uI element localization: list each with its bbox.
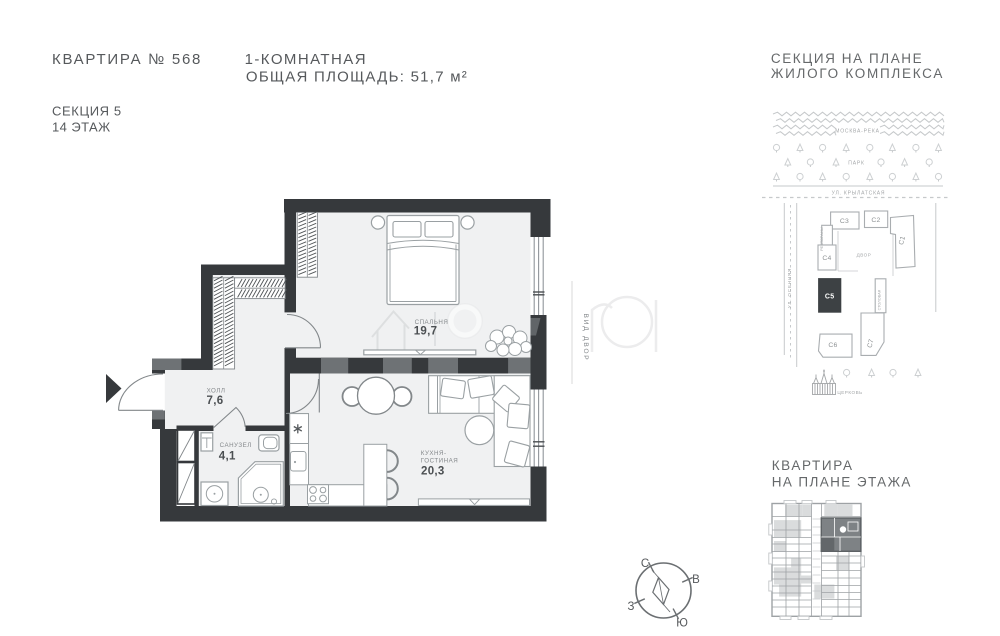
svg-text:С: С bbox=[641, 558, 649, 570]
svg-text:В: В bbox=[692, 574, 700, 586]
svg-text:С6: С6 bbox=[828, 342, 837, 349]
svg-text:УЛ. ОСЕННЯЯ: УЛ. ОСЕННЯЯ bbox=[787, 268, 792, 308]
svg-text:1-КОМНАТНАЯ: 1-КОМНАТНАЯ bbox=[245, 51, 367, 68]
svg-text:ДВОР: ДВОР bbox=[857, 253, 872, 258]
svg-text:Ю: Ю bbox=[676, 618, 688, 630]
svg-text:ВИД ДВОР: ВИД ДВОР bbox=[582, 314, 589, 362]
svg-text:УЛ. КРЫЛАТСКАЯ: УЛ. КРЫЛАТСКАЯ bbox=[832, 191, 886, 197]
svg-text:19,7: 19,7 bbox=[414, 326, 438, 338]
svg-text:С5: С5 bbox=[825, 294, 835, 301]
svg-text:ГОСТИНАЯ: ГОСТИНАЯ bbox=[421, 457, 458, 464]
svg-text:КУХНЯ-: КУХНЯ- bbox=[421, 450, 447, 457]
svg-text:ЖИЛОГО КОМПЛЕКСА: ЖИЛОГО КОМПЛЕКСА bbox=[771, 66, 944, 81]
svg-text:14 ЭТАЖ: 14 ЭТАЖ bbox=[52, 120, 111, 135]
svg-text:ПАРК: ПАРК bbox=[848, 161, 864, 167]
svg-text:ОБЩАЯ ПЛОЩАДЬ: 51,7 м²: ОБЩАЯ ПЛОЩАДЬ: 51,7 м² bbox=[246, 69, 468, 86]
svg-text:НА ПЛАНЕ ЭТАЖА: НА ПЛАНЕ ЭТАЖА bbox=[772, 475, 912, 490]
svg-text:КВАРТИРА № 568: КВАРТИРА № 568 bbox=[52, 51, 202, 68]
svg-text:7,6: 7,6 bbox=[207, 395, 224, 407]
svg-text:З: З bbox=[628, 601, 635, 613]
svg-text:С3: С3 bbox=[840, 218, 849, 225]
svg-text:С4: С4 bbox=[822, 255, 831, 262]
svg-text:СЕКЦИЯ 5: СЕКЦИЯ 5 bbox=[52, 104, 122, 119]
svg-text:С2: С2 bbox=[871, 217, 880, 224]
svg-text:РЕСТОРАНЫ: РЕСТОРАНЫ bbox=[820, 227, 824, 251]
svg-text:20,3: 20,3 bbox=[421, 466, 445, 478]
svg-text:ЦЕРКОВЬ: ЦЕРКОВЬ bbox=[837, 390, 862, 395]
svg-text:СЕКЦИЯ НА ПЛАНЕ: СЕКЦИЯ НА ПЛАНЕ bbox=[771, 51, 923, 66]
svg-text:МОСКВА-РЕКА: МОСКВА-РЕКА bbox=[835, 129, 879, 135]
svg-text:САНУЗЕЛ: САНУЗЕЛ bbox=[220, 442, 252, 449]
svg-text:4,1: 4,1 bbox=[219, 451, 236, 463]
svg-text:СТОЛОВАЯ: СТОЛОВАЯ bbox=[878, 289, 882, 310]
svg-text:КВАРТИРА: КВАРТИРА bbox=[772, 458, 854, 473]
svg-text:ХОЛЛ: ХОЛЛ bbox=[207, 388, 226, 395]
